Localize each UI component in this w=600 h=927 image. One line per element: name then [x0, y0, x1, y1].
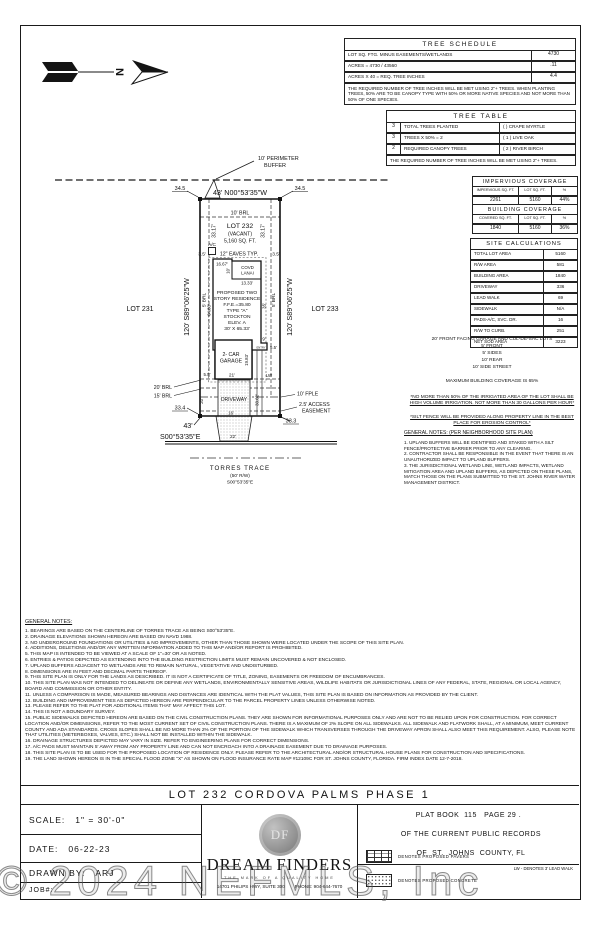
brl-20-label: 20' BRL — [154, 385, 172, 391]
eaves-note: 12" EAVES TYP. — [220, 252, 258, 258]
house-label-6: ELEV. A — [228, 320, 247, 326]
left-bearing-label: 120' S89°06'25"W — [182, 278, 191, 336]
brl-10-label: 10' BRL — [231, 211, 250, 217]
lot-233-label: LOT 233 — [311, 306, 338, 313]
table-row: SIDEWALKN/A — [471, 304, 577, 315]
table-row: 3 TOTAL TREES PLANTED ( ) CRAPE MYRTLE — [387, 123, 575, 133]
north-letter: N — [113, 68, 125, 76]
plat-line-1: PLAT BOOK 115 PAGE 29 . — [416, 812, 521, 819]
calc-label: BUILDING AREA — [471, 272, 543, 281]
calc-value: 5160 — [543, 250, 577, 259]
building-coverage-table: BUILDING COVERAGE COVERED SQ. FT. LOT SQ… — [472, 204, 578, 234]
seal-monogram: DF — [271, 827, 290, 843]
calc-value: 336 — [543, 283, 577, 292]
dim-64-83: 64.83' — [207, 304, 212, 316]
perimeter-buffer-label2: BUFFER — [264, 163, 286, 169]
header-row: IMPERVIOUS SQ. FT. LOT SQ. FT. % — [473, 187, 577, 195]
tree-schedule-note: THE REQUIRED NUMBER OF TREE INCHES WILL … — [345, 83, 575, 105]
dim-33-62: 33.62' — [255, 394, 260, 406]
eave-dim-left: 3.5' — [198, 252, 206, 258]
dim-33-3: 33.3 — [286, 419, 297, 425]
setback-side-street: 10' SIDE STREET — [404, 364, 580, 371]
street-rw-label: (50' R/W) — [230, 473, 250, 478]
dim-9: 9' — [262, 337, 265, 342]
col-header: LOT SQ. FT. — [518, 215, 551, 222]
perimeter-buffer-label: 10' PERIMETER — [258, 156, 299, 162]
right-bearing-label: 120' S89°06'25"W — [285, 278, 294, 336]
row-label: ACRES X 40 = REQ. TREE INCHES — [345, 73, 531, 82]
neighborhood-notes-title: GENERAL NOTES: (PER NEIGHBORHOOD SITE PL… — [404, 430, 582, 436]
street-bearing-label: S00°53'35"E — [227, 480, 253, 485]
dim-13-33: 13.33' — [241, 281, 253, 286]
max-coverage-note: MAXIMUM BUILDING COVERAGE IS 65% — [404, 378, 580, 385]
top-bearing-label: 43' N00°53'35"W — [213, 188, 267, 197]
building-title: BUILDING COVERAGE — [473, 205, 577, 215]
value-cell: 5160 — [518, 225, 551, 233]
dim-34-5-left: 34.5 — [175, 186, 186, 192]
house-label-5: STOCKTON — [224, 314, 251, 320]
calc-value: 16 — [543, 316, 577, 325]
col-header: LOT SQ. FT. — [518, 187, 551, 194]
sheet-title: LOT 232 CORDOVA PALMS PHASE 1 — [20, 785, 579, 805]
eave-dim-right: 3.5' — [272, 252, 280, 258]
dim-19-83: 19.83' — [244, 354, 249, 366]
table-row: BUILDING AREA1840 — [471, 271, 577, 282]
house-label-3: F.F.E.=35.80 — [223, 302, 251, 308]
table-row: ACRES = 4730 / 43560 .11 — [345, 61, 575, 72]
front-bearing-label: S00°53'35"E — [160, 432, 201, 441]
scale-value: 1" = 30'-0" — [75, 815, 125, 825]
col-header: % — [551, 187, 577, 194]
header-row: COVERED SQ. FT. LOT SQ. FT. % — [473, 215, 577, 223]
site-calculations-table: SITE CALCULATIONS TOTAL LOT AREA5160 R/W… — [470, 238, 578, 348]
brl-right-label: 5' BRL — [271, 293, 277, 308]
lot-vacant-label: (VACANT) — [228, 232, 252, 238]
dim-35: 35' — [262, 303, 267, 309]
setback-front: 5' FRONT — [404, 343, 580, 350]
impervious-title: IMPERVIOUS COVERAGE — [473, 177, 577, 187]
dim-5-5-right: 5.5' — [270, 345, 277, 350]
house-label-7: 30' X 65.33' — [224, 326, 250, 332]
row-label: ACRES = 4730 / 43560 — [345, 62, 531, 71]
row-label: LOT SQ. FTG. MINUS EASEMENTS/WETLANDS — [345, 51, 531, 60]
dim-33-17-right: 33.17' — [261, 224, 267, 238]
qty-cell: 3 — [387, 134, 400, 143]
table-row: ACRES X 40 = REQ. TREE INCHES 4.4 — [345, 72, 575, 83]
dim-33-17-left: 33.17' — [212, 224, 218, 238]
site-calc-title: SITE CALCULATIONS — [471, 239, 577, 250]
row-value: 4.4 — [531, 73, 575, 82]
lw-label: LW — [266, 373, 273, 378]
dim-5-5-left: 5.5' — [204, 372, 211, 377]
scale-label: SCALE: — [29, 815, 65, 825]
calc-value: 251 — [543, 327, 577, 336]
dim-34-5-right: 34.5 — [295, 186, 306, 192]
table-row: PADS-A/C, SVC. DR.16 — [471, 315, 577, 326]
dim-16-67: 16.67' — [216, 262, 228, 267]
table-row: R/W AREA581 — [471, 260, 577, 271]
note-line: 18. THIS SITE PLAN IS TO BE USED FOR THE… — [25, 751, 579, 757]
table-row: 2 REQUIRED CANOPY TREES ( 2 ) RIVER BIRC… — [387, 144, 575, 155]
calc-label: DRIVEWAY — [471, 283, 543, 292]
calc-value: 69 — [543, 294, 577, 303]
calc-value: 581 — [543, 261, 577, 270]
silt-fence-note: *SILT FENCE WILL BE PROVIDED ALONG PROPE… — [404, 415, 580, 427]
lanai-label: COVD — [241, 265, 254, 270]
setback-header: 20' FRONT FACING GARAGE AND CUL-DE-SAC L… — [404, 336, 580, 343]
ac-pad — [209, 248, 216, 255]
tree-table-note: THE REQUIRED NUMBER OF TREE INCHES WILL … — [387, 155, 575, 166]
table-row: TOTAL LOT AREA5160 — [471, 250, 577, 260]
note-line: 19. THE LAND SHOWN HEREON IS IN THE SPEC… — [25, 757, 579, 763]
species-cell: ( 2 ) RIVER BIRCH — [499, 145, 575, 154]
col-header: % — [551, 215, 577, 222]
row-value: 4730 — [531, 51, 575, 60]
tree-schedule-table: TREE SCHEDULE LOT SQ. FTG. MINUS EASEMEN… — [344, 38, 576, 105]
row-value: .11 — [531, 62, 575, 71]
irrigation-note: *NO MORE THAN 50% OF THE IRRIGATED AREA … — [404, 395, 580, 407]
col-header: IMPERVIOUS SQ. FT. — [473, 187, 518, 194]
house-label-2: STORY RESIDENCE — [214, 296, 261, 302]
neighborhood-notes-body: 1. UPLAND BUFFERS WILL BE IDENTIFIED AND… — [404, 440, 582, 486]
driveway-label: DRIVEWAY — [221, 397, 248, 403]
table-row: LEAD WALK69 — [471, 293, 577, 304]
table-row: 3 TREES X 50% = 2 ( 1 ) LIVE OAK — [387, 133, 575, 144]
dim-20: 20' — [199, 398, 204, 404]
site-plan-drawing: N 10' PERIMETER BUFFER 34.5 34.5 43' N00… — [40, 50, 420, 500]
lot-232-label: LOT 232 — [227, 223, 254, 230]
dim-16: 16' — [228, 411, 234, 416]
dim-33-4: 33.4 — [175, 406, 186, 412]
col-header: COVERED SQ. FT. — [473, 215, 518, 222]
setback-notes: 20' FRONT FACING GARAGE AND CUL-DE-SAC L… — [404, 336, 580, 427]
dim-22: 22' — [230, 434, 236, 439]
calc-value: N/A — [543, 305, 577, 314]
tree-table: TREE TABLE 3 TOTAL TREES PLANTED ( ) CRA… — [386, 110, 576, 166]
sheet-title-text: LOT 232 CORDOVA PALMS PHASE 1 — [169, 789, 430, 801]
general-notes: GENERAL NOTES: 1. BEARINGS ARE BASED ON … — [25, 619, 579, 762]
entry-label: ENTRY — [256, 346, 265, 350]
access-easement-label2: EASEMENT — [302, 409, 331, 415]
impervious-coverage-table: IMPERVIOUS COVERAGE IMPERVIOUS SQ. FT. L… — [472, 176, 578, 206]
front-dim-43: 43' — [183, 421, 193, 430]
table-row: DRIVEWAY336 — [471, 282, 577, 293]
calc-label: R/W TO CURB. — [471, 327, 543, 336]
value-row: 1840 5160 36% — [473, 224, 577, 233]
value-cell: 1840 — [473, 225, 518, 233]
scale-row: SCALE: 1" = 30'-0" — [20, 805, 202, 835]
street-name-label: TORRES TRACE — [210, 465, 270, 472]
garage-label-2: GARAGE — [220, 359, 243, 365]
lot-area-label: 5,160 SQ. FT. — [224, 239, 256, 245]
label-cell: REQUIRED CANOPY TREES — [400, 145, 499, 154]
calc-label: SIDEWALK — [471, 305, 543, 314]
value-cell: 36% — [551, 225, 577, 233]
north-arrow-icon: N — [42, 60, 168, 84]
table-row: R/W TO CURB.251 — [471, 326, 577, 337]
house-label-1: PROPOSED TWO — [217, 290, 258, 296]
label-cell: TREES X 50% = 2 — [400, 134, 499, 143]
date-label: DATE: — [29, 844, 58, 854]
dream-finders-seal-icon: DF — [259, 814, 301, 856]
house-label-4: TYPE "A" — [227, 308, 248, 314]
brl-15-label: 15' BRL — [154, 394, 172, 400]
lanai-label2: LANAI — [241, 271, 254, 276]
species-cell: ( 1 ) LIVE OAK — [499, 134, 575, 143]
dim-21: 21' — [229, 373, 235, 379]
note-line: 15. PUBLIC SIDEWALKS DEPICTED HEREON ARE… — [25, 716, 579, 739]
garage-label-1: 2- CAR — [222, 352, 239, 358]
calc-value: 1840 — [543, 272, 577, 281]
note-line: 10. THIS SITE PLAN WAS NOT INTENDED TO D… — [25, 681, 579, 693]
plat-line-2: OF THE CURRENT PUBLIC RECORDS — [401, 831, 541, 838]
label-cell: TOTAL TREES PLANTED — [400, 123, 499, 132]
setback-rear: 10' REAR — [404, 357, 580, 364]
table-row: LOT SQ. FTG. MINUS EASEMENTS/WETLANDS 47… — [345, 51, 575, 61]
access-easement-label: 2.5' ACCESS — [299, 402, 330, 408]
calc-label: LEAD WALK — [471, 294, 543, 303]
date-value: 06-22-23 — [68, 844, 110, 854]
dim-10: 10' — [226, 268, 231, 274]
fple-label: 10' FPLE — [297, 392, 319, 398]
qty-cell: 3 — [387, 123, 400, 132]
species-cell: ( ) CRAPE MYRTLE — [499, 123, 575, 132]
lot-231-label: LOT 231 — [126, 306, 153, 313]
general-notes-title: GENERAL NOTES: — [25, 619, 579, 625]
tree-schedule-title: TREE SCHEDULE — [345, 39, 575, 51]
qty-cell: 2 — [387, 145, 400, 154]
mls-watermark: © 2024 NEFMLS, Inc — [0, 857, 600, 905]
tree-table-title: TREE TABLE — [387, 111, 575, 123]
calc-label: TOTAL LOT AREA — [471, 250, 543, 259]
neighborhood-notes: GENERAL NOTES: (PER NEIGHBORHOOD SITE PL… — [404, 430, 582, 486]
setback-sides: 5' SIDES — [404, 350, 580, 357]
calc-label: R/W AREA — [471, 261, 543, 270]
calc-label: PADS-A/C, SVC. DR. — [471, 316, 543, 325]
